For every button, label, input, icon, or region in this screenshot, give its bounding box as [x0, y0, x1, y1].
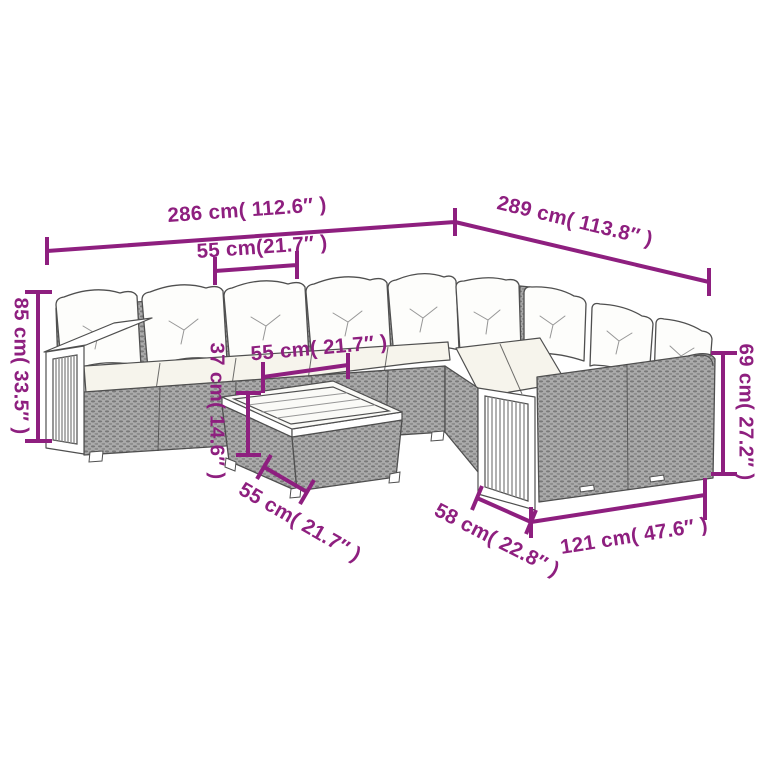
dim-label-right-section-width: 121 cm( 47.6″ ) — [559, 513, 710, 559]
dim-arm-height-right: 69 cm( 27.2″ ) — [711, 343, 758, 480]
right-armrest-slat-panel — [478, 388, 535, 511]
dim-label-backrest-height: 85 cm( 33.5″ ) — [10, 297, 33, 434]
dim-seat-module-width: 55 cm(21.7″ ) — [196, 231, 328, 285]
dim-label-overall-width-right: 289 cm( 113.8″ ) — [495, 191, 655, 251]
sofa-drawing — [44, 274, 715, 511]
product-dimension-diagram: 286 cm( 112.6″ ) 289 cm( 113.8″ ) 55 cm(… — [0, 0, 767, 767]
sofa-foot — [89, 451, 103, 462]
dim-label-seat-depth-right: 58 cm( 22.8″ ) — [431, 499, 564, 582]
dim-label-overall-width-left: 286 cm( 112.6″ ) — [167, 193, 328, 227]
rattan-back-right-section — [537, 354, 715, 502]
dim-label-seat-module-width: 55 cm(21.7″ ) — [196, 231, 328, 263]
dim-label-arm-height-right: 69 cm( 27.2″ ) — [735, 343, 758, 480]
sofa-foot — [431, 431, 444, 441]
table-foot — [389, 472, 400, 483]
slats — [56, 353, 74, 446]
dim-label-table-height: 37 cm( 14.6″ ) — [206, 342, 229, 479]
sofa-set-illustration: 286 cm( 112.6″ ) 289 cm( 113.8″ ) 55 cm(… — [0, 0, 767, 767]
